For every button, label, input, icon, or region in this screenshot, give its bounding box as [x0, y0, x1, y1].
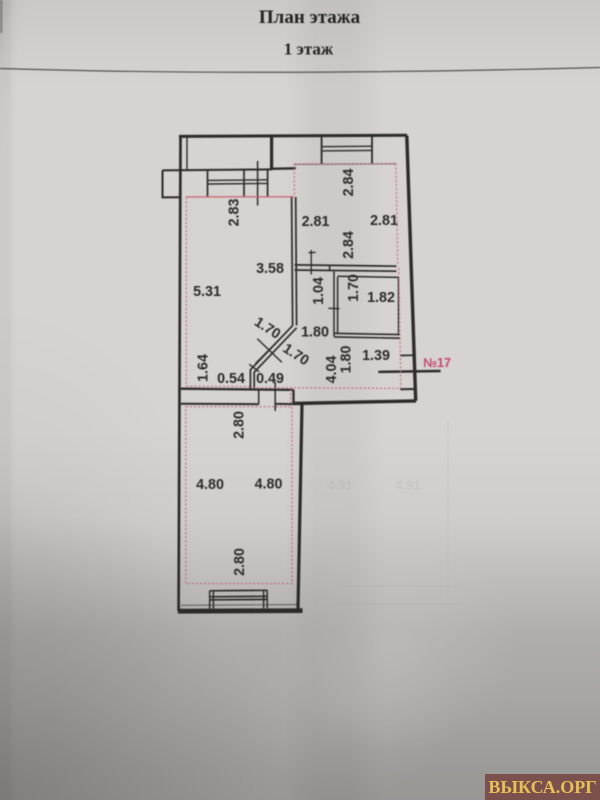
svg-text:1.82: 1.82: [367, 290, 395, 306]
svg-text:4.80: 4.80: [196, 477, 224, 493]
svg-text:1.64: 1.64: [196, 354, 212, 382]
svg-text:0.49: 0.49: [256, 371, 284, 387]
svg-text:1 этаж: 1 этаж: [284, 40, 334, 59]
svg-text:1.04: 1.04: [311, 277, 327, 305]
svg-text:2.84: 2.84: [341, 231, 357, 259]
svg-text:2.81: 2.81: [302, 214, 330, 230]
svg-text:3.58: 3.58: [256, 261, 284, 277]
svg-text:2.80: 2.80: [232, 411, 248, 439]
svg-text:2.81: 2.81: [370, 213, 398, 229]
svg-text:1.80: 1.80: [339, 346, 355, 374]
svg-text:1.80: 1.80: [301, 325, 329, 341]
svg-text:1.70: 1.70: [280, 341, 312, 370]
svg-text:4.91: 4.91: [395, 478, 420, 493]
svg-text:1.39: 1.39: [362, 348, 390, 364]
svg-text:0.54: 0.54: [217, 371, 245, 387]
svg-text:5.31: 5.31: [193, 284, 221, 300]
svg-text:2.80: 2.80: [232, 548, 248, 576]
svg-text:2.84: 2.84: [341, 169, 357, 197]
svg-text:4.80: 4.80: [255, 477, 283, 493]
svg-text:№17: №17: [423, 356, 451, 370]
svg-text:1.70: 1.70: [346, 274, 362, 302]
svg-text:1.70: 1.70: [251, 314, 283, 343]
svg-text:4.04: 4.04: [324, 356, 340, 384]
svg-text:2.83: 2.83: [226, 199, 242, 227]
svg-text:4.91: 4.91: [327, 478, 352, 493]
svg-text:План этажа: План этажа: [259, 7, 361, 28]
